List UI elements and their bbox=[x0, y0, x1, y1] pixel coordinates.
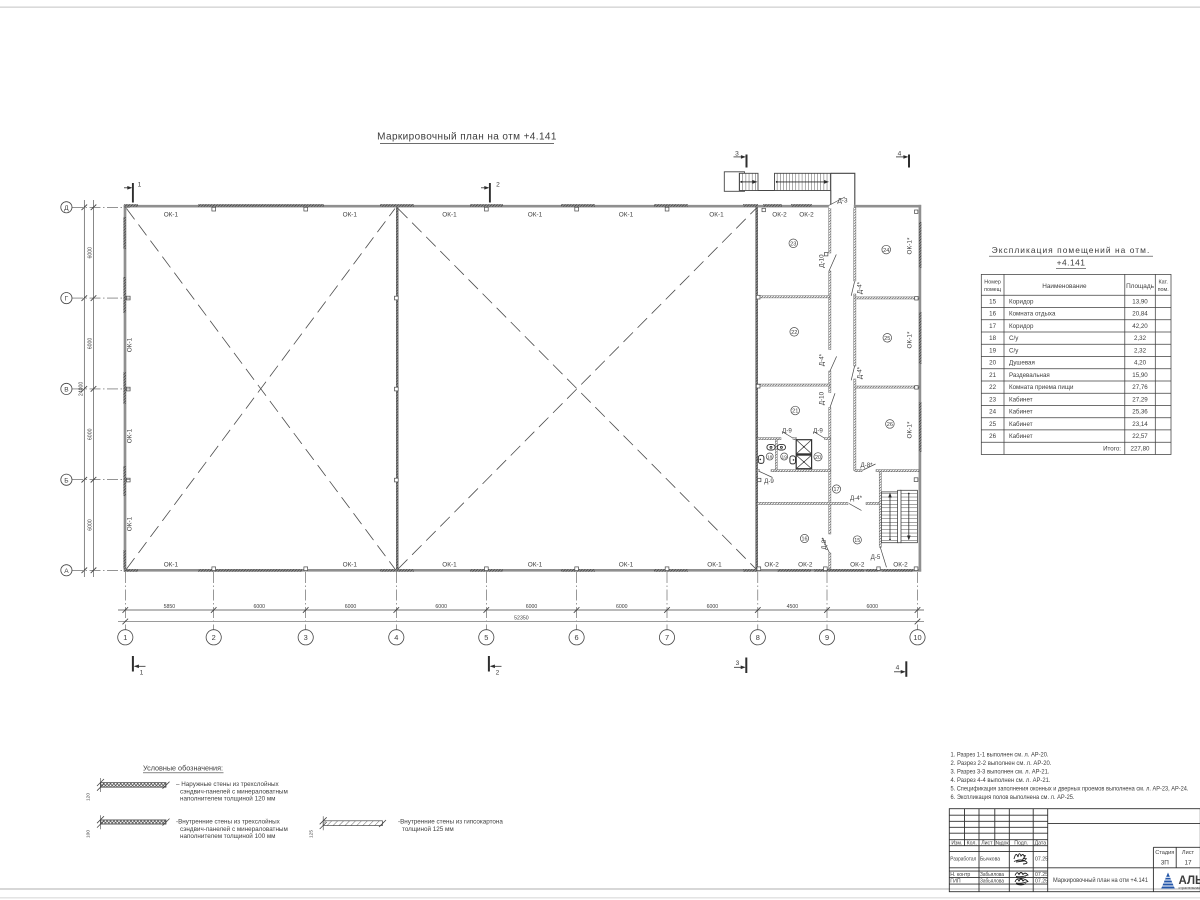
svg-text:помещ: помещ bbox=[984, 287, 1002, 293]
svg-text:ОК-1: ОК-1 bbox=[164, 562, 179, 569]
svg-text:1: 1 bbox=[138, 182, 142, 189]
svg-text:42,20: 42,20 bbox=[1132, 323, 1148, 330]
svg-text:125: 125 bbox=[309, 830, 315, 838]
svg-text:6000: 6000 bbox=[526, 604, 538, 610]
svg-text:6000: 6000 bbox=[88, 338, 94, 350]
svg-text:ОК-2: ОК-2 bbox=[893, 562, 908, 569]
svg-text:Комната отдыха: Комната отдыха bbox=[1009, 311, 1056, 318]
svg-text:ОК-2: ОК-2 bbox=[850, 562, 865, 569]
svg-text:13,90: 13,90 bbox=[1132, 298, 1148, 305]
svg-text:наполнителем толщиной 100 мм: наполнителем толщиной 100 мм bbox=[180, 832, 276, 840]
svg-text:100: 100 bbox=[86, 830, 92, 838]
svg-text:ОК-2: ОК-2 bbox=[799, 211, 814, 218]
svg-text:Маркировочный план на отм +4.1: Маркировочный план на отм +4.141 bbox=[1053, 876, 1148, 884]
svg-text:Д-4*: Д-4* bbox=[819, 353, 826, 366]
svg-text:4. Разрез 4-4 выполнен см. л.: 4. Разрез 4-4 выполнен см. л. АР-21. bbox=[951, 777, 1051, 784]
svg-text:ОК-2: ОК-2 bbox=[772, 211, 787, 218]
svg-text:23: 23 bbox=[790, 242, 796, 248]
svg-text:16: 16 bbox=[989, 311, 996, 318]
svg-text:1: 1 bbox=[140, 670, 144, 677]
svg-text:20,84: 20,84 bbox=[1132, 311, 1148, 318]
svg-text:Экспликация помещений на отм.: Экспликация помещений на отм. bbox=[992, 245, 1151, 255]
svg-text:16: 16 bbox=[802, 537, 808, 543]
svg-text:18: 18 bbox=[767, 455, 773, 461]
svg-text:сэндвич-панелей с минераловатн: сэндвич-панелей с минераловатным bbox=[180, 787, 288, 795]
svg-text:25,36: 25,36 bbox=[1132, 409, 1148, 416]
svg-text:1. Разрез 1-1 выполнен см. л.: 1. Разрез 1-1 выполнен см. л. АР-20. bbox=[951, 752, 1049, 759]
svg-text:Д-10: Д-10 bbox=[819, 391, 826, 405]
svg-text:Д-10: Д-10 bbox=[819, 254, 826, 268]
svg-text:Д-4*: Д-4* bbox=[850, 495, 863, 502]
svg-text:Комната приема пищи: Комната приема пищи bbox=[1009, 384, 1074, 391]
svg-text:6000: 6000 bbox=[867, 604, 879, 610]
svg-text:Д-9: Д-9 bbox=[782, 428, 792, 435]
svg-text:24: 24 bbox=[883, 248, 889, 254]
svg-text:№док: №док bbox=[996, 841, 1010, 847]
svg-text:С/у: С/у bbox=[1009, 347, 1019, 354]
svg-text:Кабинет: Кабинет bbox=[1009, 409, 1033, 416]
svg-text:23: 23 bbox=[989, 396, 996, 403]
svg-text:наполнителем толщиной 120 мм: наполнителем толщиной 120 мм bbox=[180, 795, 276, 803]
svg-text:3П: 3П bbox=[1161, 860, 1170, 867]
svg-text:Забьялова: Забьялова bbox=[980, 879, 1004, 885]
svg-text:6000: 6000 bbox=[254, 604, 266, 610]
svg-text:ГИП: ГИП bbox=[950, 879, 961, 885]
svg-text:ОК-1*: ОК-1* bbox=[907, 331, 914, 348]
svg-text:23,14: 23,14 bbox=[1132, 421, 1148, 428]
svg-text:Коридор: Коридор bbox=[1009, 298, 1034, 305]
svg-text:20: 20 bbox=[989, 360, 996, 367]
svg-text:ОК-1: ОК-1 bbox=[127, 428, 134, 443]
svg-text:6000: 6000 bbox=[616, 604, 628, 610]
svg-text:7: 7 bbox=[665, 633, 669, 642]
svg-text:24000: 24000 bbox=[79, 382, 85, 397]
svg-text:Разработал: Разработал bbox=[950, 857, 976, 863]
svg-text:27,29: 27,29 bbox=[1132, 396, 1148, 403]
svg-text:26: 26 bbox=[989, 433, 996, 440]
svg-text:В: В bbox=[64, 387, 69, 394]
svg-text:18: 18 bbox=[989, 335, 996, 342]
svg-text:3. Разрез 3-3 выполнен см. л.: 3. Разрез 3-3 выполнен см. л. АР-21. bbox=[951, 769, 1050, 776]
svg-text:19: 19 bbox=[782, 455, 788, 461]
svg-text:07.25: 07.25 bbox=[1035, 879, 1048, 885]
svg-text:Д-9: Д-9 bbox=[813, 428, 823, 435]
svg-text:8: 8 bbox=[756, 633, 760, 642]
svg-text:3: 3 bbox=[304, 633, 308, 642]
svg-text:21: 21 bbox=[792, 409, 798, 415]
svg-text:2: 2 bbox=[496, 182, 500, 189]
svg-text:6000: 6000 bbox=[345, 604, 357, 610]
svg-text:2,32: 2,32 bbox=[1134, 335, 1147, 342]
svg-text:2. Разрез 2-2 выполнен см. л.: 2. Разрез 2-2 выполнен см. л. АР-20. bbox=[951, 760, 1052, 767]
svg-text:ОК-1: ОК-1 bbox=[164, 211, 179, 218]
svg-text:3: 3 bbox=[735, 150, 739, 157]
svg-text:Кат.: Кат. bbox=[1159, 280, 1168, 286]
svg-text:-Внутренние стены из гипсокарт: -Внутренние стены из гипсокартона bbox=[398, 819, 503, 826]
svg-text:ОК-1: ОК-1 bbox=[127, 516, 134, 531]
svg-text:15,90: 15,90 bbox=[1132, 372, 1148, 379]
svg-text:Н. контр: Н. контр bbox=[950, 872, 970, 878]
svg-text:07.25: 07.25 bbox=[1035, 872, 1048, 878]
svg-text:22,57: 22,57 bbox=[1132, 433, 1148, 440]
svg-text:Дата: Дата bbox=[1035, 841, 1047, 847]
svg-text:ОК-1: ОК-1 bbox=[619, 211, 634, 218]
svg-text:+4.141: +4.141 bbox=[1057, 258, 1086, 268]
svg-text:10: 10 bbox=[913, 633, 921, 642]
svg-text:Кабинет: Кабинет bbox=[1009, 433, 1033, 440]
svg-text:26: 26 bbox=[887, 422, 893, 428]
svg-text:227,80: 227,80 bbox=[1131, 445, 1150, 452]
svg-text:ОК-1*: ОК-1* bbox=[907, 237, 914, 254]
svg-text:120: 120 bbox=[86, 793, 92, 801]
svg-text:ОК-1: ОК-1 bbox=[528, 562, 543, 569]
svg-text:строительная компания: строительная компания bbox=[1179, 886, 1200, 890]
svg-text:Душевая: Душевая bbox=[1009, 360, 1035, 367]
svg-text:Д-5: Д-5 bbox=[871, 554, 881, 561]
svg-text:25: 25 bbox=[989, 421, 996, 428]
svg-text:толщиной 125 мм: толщиной 125 мм bbox=[402, 825, 454, 833]
svg-text:Номер: Номер bbox=[984, 280, 1001, 286]
svg-text:Лист: Лист bbox=[981, 841, 993, 847]
svg-text:5: 5 bbox=[484, 633, 488, 642]
svg-text:Д-8*: Д-8* bbox=[860, 462, 873, 469]
svg-text:22: 22 bbox=[989, 384, 996, 391]
svg-text:ОК-1*: ОК-1* bbox=[907, 421, 914, 438]
svg-text:Подп.: Подп. bbox=[1014, 841, 1028, 847]
svg-text:17: 17 bbox=[989, 323, 996, 330]
svg-text:ОК-1: ОК-1 bbox=[707, 562, 722, 569]
svg-text:Д-8*: Д-8* bbox=[821, 537, 828, 550]
svg-text:4: 4 bbox=[896, 665, 900, 672]
svg-text:сэндвич-панелей с минераловатн: сэндвич-панелей с минераловатным bbox=[180, 825, 288, 833]
svg-text:Г: Г bbox=[65, 296, 69, 303]
svg-text:4500: 4500 bbox=[787, 604, 799, 610]
svg-text:ОК-1: ОК-1 bbox=[528, 211, 543, 218]
svg-text:6: 6 bbox=[575, 633, 579, 642]
svg-text:1: 1 bbox=[123, 633, 127, 642]
svg-text:Д-4*: Д-4* bbox=[857, 281, 864, 294]
svg-text:Кол.: Кол. bbox=[967, 841, 977, 847]
svg-text:22: 22 bbox=[791, 330, 797, 336]
svg-text:2: 2 bbox=[496, 670, 500, 677]
svg-text:4,20: 4,20 bbox=[1134, 360, 1147, 367]
svg-text:19: 19 bbox=[989, 347, 996, 354]
svg-text:4: 4 bbox=[898, 150, 902, 157]
svg-text:52350: 52350 bbox=[514, 616, 529, 622]
svg-text:Д-3: Д-3 bbox=[837, 198, 847, 205]
svg-text:Изм.: Изм. bbox=[951, 841, 962, 847]
svg-text:Маркировочный план на отм +4.1: Маркировочный план на отм +4.141 bbox=[377, 132, 557, 143]
svg-text:15: 15 bbox=[854, 538, 860, 544]
svg-text:Д-4*: Д-4* bbox=[857, 366, 864, 379]
svg-text:пом.: пом. bbox=[1158, 287, 1169, 293]
svg-text:ОК-1: ОК-1 bbox=[442, 562, 457, 569]
svg-text:17: 17 bbox=[1184, 860, 1192, 867]
svg-text:Д-9: Д-9 bbox=[764, 478, 774, 485]
svg-text:Условные обозначения:: Условные обозначения: bbox=[143, 765, 223, 773]
svg-text:Лист: Лист bbox=[1182, 850, 1195, 856]
svg-text:Д: Д bbox=[64, 205, 69, 212]
svg-text:25: 25 bbox=[884, 336, 890, 342]
svg-text:27,76: 27,76 bbox=[1132, 384, 1148, 391]
svg-text:Бычкова: Бычкова bbox=[980, 857, 1000, 863]
svg-text:5. Спецификация заполнения око: 5. Спецификация заполнения оконных и две… bbox=[951, 786, 1189, 793]
svg-text:21: 21 bbox=[989, 372, 996, 379]
svg-text:ОК-1: ОК-1 bbox=[343, 211, 358, 218]
svg-text:Раздевальная: Раздевальная bbox=[1009, 372, 1050, 379]
svg-text:17: 17 bbox=[834, 487, 840, 493]
svg-text:15: 15 bbox=[989, 298, 996, 305]
svg-text:ОК-1: ОК-1 bbox=[343, 562, 358, 569]
svg-text:6000: 6000 bbox=[435, 604, 447, 610]
svg-text:ОК-2: ОК-2 bbox=[764, 562, 779, 569]
svg-text:– Наружные стены из трехслойны: – Наружные стены из трехслойных bbox=[176, 780, 280, 788]
svg-text:6000: 6000 bbox=[88, 519, 94, 531]
svg-text:С/у: С/у bbox=[1009, 335, 1019, 342]
svg-text:ОК-1: ОК-1 bbox=[127, 337, 134, 352]
svg-text:Забьялова: Забьялова bbox=[980, 872, 1004, 878]
svg-text:Стадия: Стадия bbox=[1155, 850, 1174, 856]
svg-text:Коридор: Коридор bbox=[1009, 323, 1034, 330]
svg-text:20: 20 bbox=[815, 455, 821, 461]
svg-text:Наименование: Наименование bbox=[1042, 283, 1087, 290]
svg-text:4: 4 bbox=[394, 633, 398, 642]
svg-text:Итого:: Итого: bbox=[1103, 445, 1121, 452]
svg-text:ОК-1: ОК-1 bbox=[442, 211, 457, 218]
svg-text:5850: 5850 bbox=[164, 604, 176, 610]
svg-text:Б: Б bbox=[64, 477, 68, 484]
svg-text:ОК-2: ОК-2 bbox=[798, 562, 813, 569]
svg-text:07.25: 07.25 bbox=[1035, 857, 1048, 863]
svg-text:2: 2 bbox=[212, 633, 216, 642]
svg-text:6000: 6000 bbox=[707, 604, 719, 610]
svg-text:6. Экспликация полов выполнена: 6. Экспликация полов выполнена см. л. АР… bbox=[951, 794, 1075, 801]
svg-text:Площадь: Площадь bbox=[1126, 283, 1154, 290]
svg-text:6000: 6000 bbox=[88, 428, 94, 440]
svg-text:2,32: 2,32 bbox=[1134, 347, 1147, 354]
svg-text:Кабинет: Кабинет bbox=[1009, 421, 1033, 428]
svg-text:24: 24 bbox=[989, 409, 996, 416]
svg-text:ОК-1: ОК-1 bbox=[709, 211, 724, 218]
svg-text:3: 3 bbox=[736, 660, 740, 667]
svg-text:9: 9 bbox=[825, 633, 829, 642]
svg-text:ОК-1: ОК-1 bbox=[619, 562, 634, 569]
svg-text:Кабинет: Кабинет bbox=[1009, 396, 1033, 403]
svg-text:-Внутренние стены из трехслойн: -Внутренние стены из трехслойных bbox=[176, 818, 281, 826]
svg-text:А: А bbox=[64, 568, 69, 575]
svg-text:6000: 6000 bbox=[88, 247, 94, 259]
